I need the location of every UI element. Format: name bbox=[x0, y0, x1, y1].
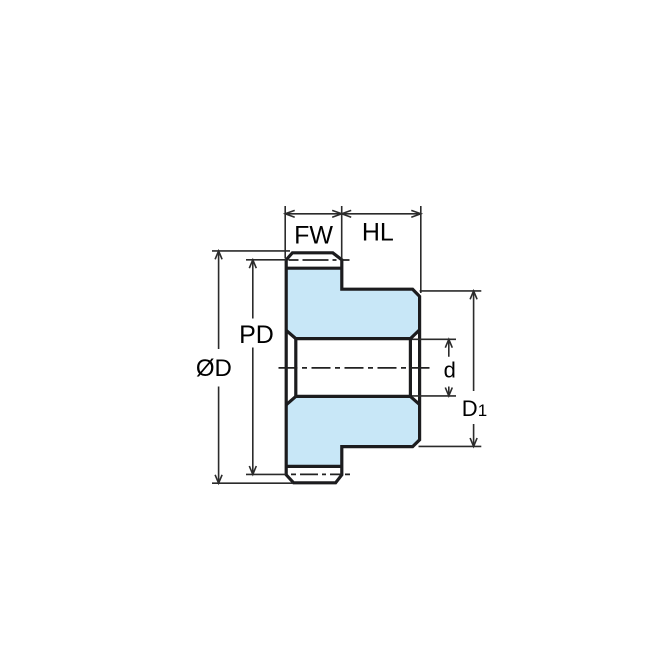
svg-text:ØD: ØD bbox=[196, 355, 232, 382]
svg-text:HL: HL bbox=[362, 219, 394, 247]
svg-text:d: d bbox=[444, 357, 456, 382]
svg-text:PD: PD bbox=[239, 321, 274, 349]
svg-text:FW: FW bbox=[294, 221, 333, 249]
